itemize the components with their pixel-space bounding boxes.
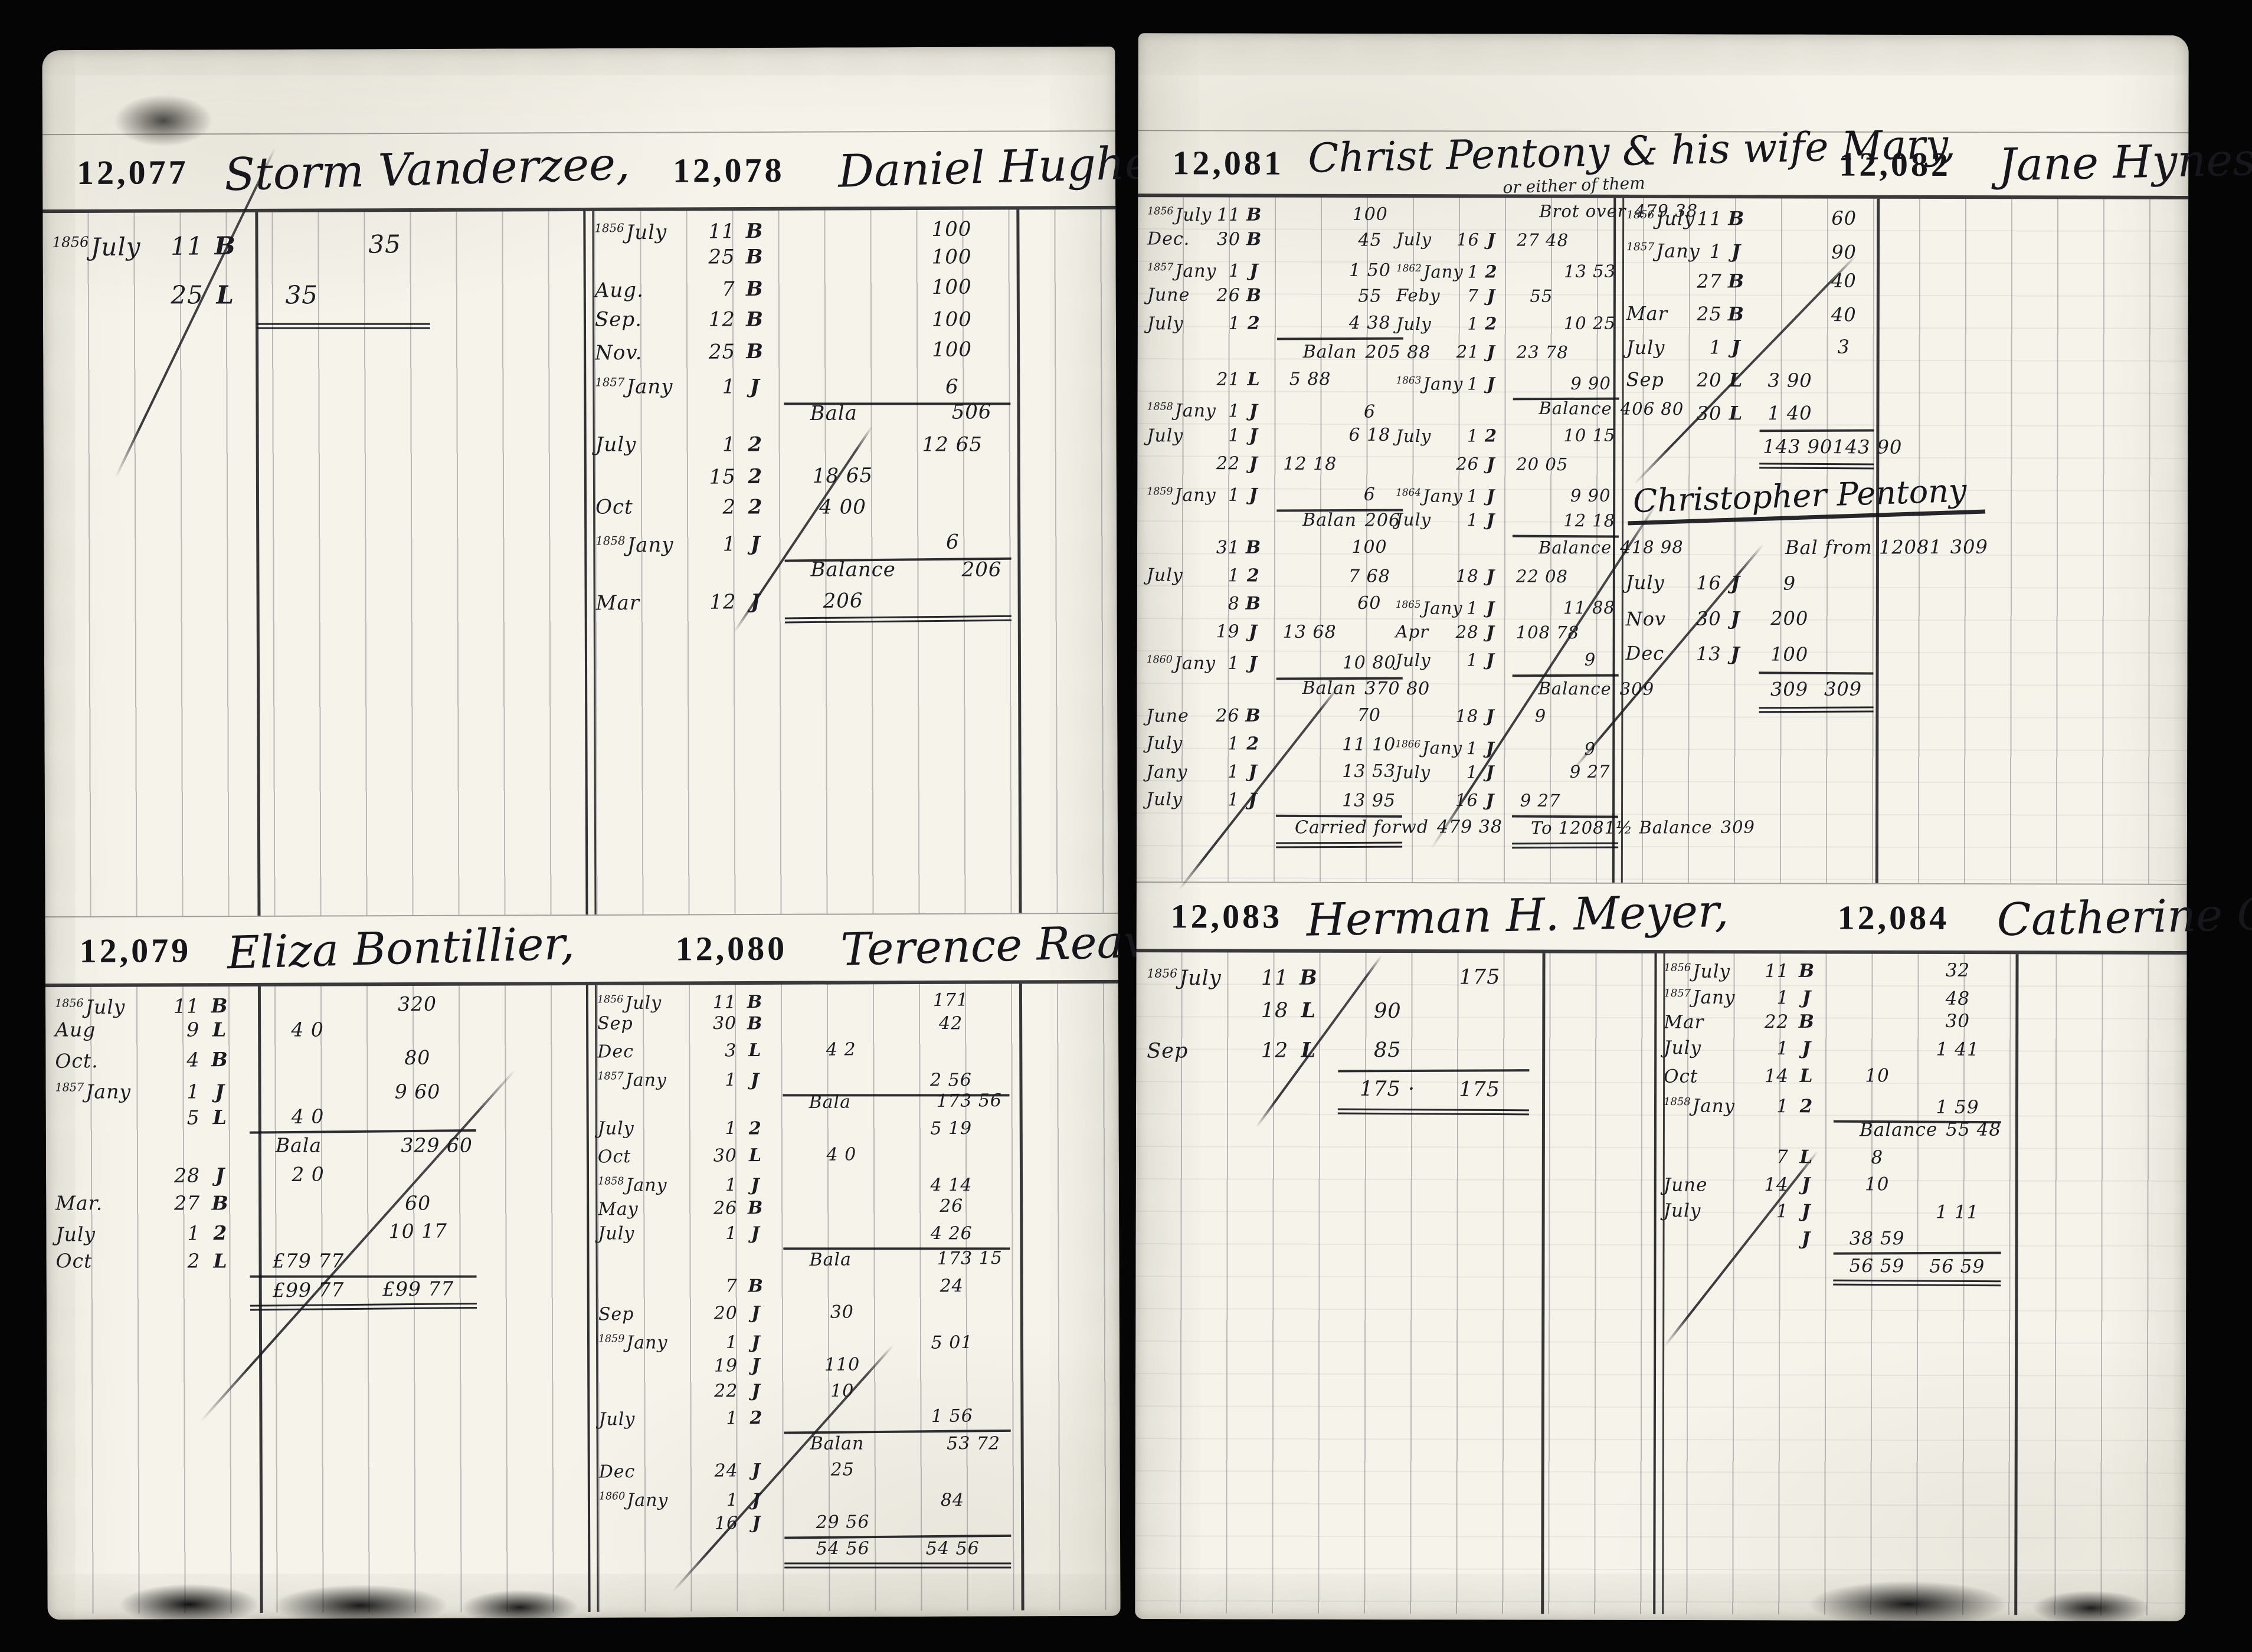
entry-day: 12	[702, 586, 737, 618]
entry-ref: B	[738, 1273, 774, 1300]
entry-date: Mar	[1658, 1008, 1757, 1036]
entry-amount-left	[1281, 301, 1340, 301]
account-number-12079: 12,079	[80, 930, 227, 971]
entry-day: 27	[1696, 264, 1722, 297]
entry-amounts: 35	[256, 217, 430, 274]
account-holder-name: Eliza Bontillier,	[227, 918, 676, 975]
entry-amounts: 10 25	[1513, 310, 1619, 338]
entry-ref: J	[1721, 601, 1750, 637]
entry-date: July	[1621, 331, 1696, 365]
account-header-band: 12,079 Eliza Bontillier, 12,080 Terence …	[45, 913, 1118, 987]
entry-date	[1657, 1271, 1756, 1271]
account-holder-name: Jane Hynes.	[1998, 137, 2252, 188]
ledger-entry-row: 1862Jany1213 53	[1390, 254, 1613, 283]
entry-ref: 2	[1240, 562, 1267, 590]
entry-amount-left: £79 77	[254, 1247, 364, 1276]
entry-ref: L	[199, 1103, 240, 1132]
entry-amount-right	[1917, 1190, 1998, 1191]
ledger-entry-row: June26B55	[1141, 281, 1389, 310]
entry-ref: B	[737, 1011, 773, 1037]
entry-ref: L	[204, 268, 247, 323]
entry-ref: B	[1722, 264, 1750, 297]
ledger-entry-row: To 12081½ Balance309	[1389, 814, 1612, 843]
entry-day	[702, 421, 736, 421]
entry-amounts: 60	[250, 1189, 476, 1218]
entry-amounts: 9	[1512, 702, 1618, 730]
entry-day: 1	[703, 1067, 737, 1094]
ledger-entry-row: July1J3	[1621, 330, 1874, 364]
ledger-entry-row: Carried forwd479 38	[1140, 814, 1388, 843]
entry-amount-left: 9 27	[1515, 786, 1565, 815]
entry-date	[1390, 581, 1456, 582]
ledger-entry-row: 28J2 0	[50, 1157, 584, 1191]
entry-label: Balan	[810, 1431, 865, 1457]
account-number-12081: 12,081	[1172, 143, 1308, 182]
entry-amount-left: 18 65	[788, 460, 898, 493]
account-panel-12079: 1856July11B320Aug9L4 0Oct.4B801857Jany1J…	[49, 985, 585, 1614]
entry-amount-left: 1 40	[1763, 396, 1816, 430]
entry-date: July	[1658, 1197, 1757, 1225]
account-panel-12081-col2: Brot over479 38July16J27 481862Jany1213 …	[1389, 198, 1613, 883]
entry-label: Balan	[1302, 674, 1356, 702]
entry-date: July	[1141, 422, 1215, 450]
entry-ref: J	[1721, 565, 1750, 601]
entry-day: 1	[1696, 234, 1722, 267]
entry-amounts: 100	[1759, 637, 1873, 675]
entry-amount-left: 175 ·	[1341, 1070, 1433, 1109]
entry-day: 14	[1757, 1063, 1789, 1090]
entry-day: 1	[1456, 506, 1478, 534]
entry-amount-left	[253, 1011, 362, 1012]
entry-date	[1620, 696, 1695, 697]
entry-day: 7	[1456, 282, 1479, 310]
entry-amount-right: 40	[1817, 264, 1871, 297]
ledger-entry-row: Balan370 80	[1140, 673, 1388, 703]
ledger-entries: 1856July11B321857Jany1J48Mar22B30July1J1…	[1657, 953, 2012, 1280]
entry-date: Mar.	[50, 1189, 165, 1218]
entry-amount-right: 175	[1433, 1070, 1526, 1109]
entry-amount-left: 27 48	[1517, 226, 1569, 254]
entry-day: 30	[1695, 396, 1721, 430]
entry-label: Balan	[1303, 337, 1357, 366]
entry-date	[1141, 553, 1215, 554]
entry-ref: J	[1478, 450, 1503, 478]
entry-amounts: 1 41	[1834, 1035, 2001, 1064]
entry-day: 7	[1757, 1143, 1789, 1171]
entry-ref: 2	[200, 1218, 240, 1248]
ledger-entry-row: 143 90143 90	[1620, 429, 1874, 463]
ledger-entry-row: 1864Jany1J9 90	[1390, 478, 1613, 507]
entry-day: 1	[1757, 984, 1789, 1011]
entry-ref: J	[738, 1353, 774, 1379]
entry-amounts: 11 10	[1276, 730, 1402, 759]
entry-ref: J	[1240, 618, 1267, 646]
entry-amounts: 9	[1759, 566, 1874, 602]
entry-date	[1141, 385, 1216, 386]
entry-date: Nov.	[589, 337, 702, 369]
entry-amount-right	[1917, 1244, 1998, 1245]
entry-date: 1859Jany	[593, 1326, 705, 1356]
entry-amount-left	[1279, 805, 1339, 806]
entry-amount-left: 4 0	[253, 1102, 362, 1132]
entry-amount-left: 4 0	[253, 1015, 362, 1044]
entry-amount-left: 3 90	[1763, 363, 1816, 397]
entry-ref: L	[1240, 366, 1267, 394]
ledger-entry-row: 8B60	[1141, 589, 1389, 618]
ledger-entry-row: 1857Jany1J90	[1621, 231, 1874, 265]
ledger-entry-row: 31B100	[1141, 533, 1389, 562]
entry-day: 4	[164, 1045, 199, 1074]
entry-day: 26	[1456, 450, 1478, 478]
entry-label: Bal from 12081	[1785, 529, 1942, 565]
ledger-grid-section: 1856July11B100Dec.30B451857Jany1J1 50Jun…	[1137, 197, 2188, 884]
ledger-grid-section: 1856July11B3525L35 1856July11B10025B100A…	[42, 209, 1118, 916]
entry-label: Brot over	[1539, 198, 1626, 226]
entry-amount-right: 320	[362, 989, 472, 1019]
entry-day: 1	[1215, 758, 1239, 786]
ledger-entry-row: July1J9 27	[1389, 758, 1612, 787]
ledger-entry-row: 7L8	[1658, 1143, 2012, 1172]
entry-day: 9	[164, 1015, 199, 1044]
entry-day: 1	[165, 1218, 200, 1248]
entry-amounts: 4 00	[784, 491, 1011, 523]
entry-date: 1857Jany	[591, 1063, 703, 1094]
ledger-entry-row: 25B100	[589, 241, 1108, 273]
entry-amount-right	[1433, 1018, 1526, 1018]
ledger-entry-row: 21J23 78	[1390, 337, 1613, 367]
entry-amounts: 55	[1277, 281, 1403, 310]
ledger-entry-row: 1856July11B100	[588, 208, 1108, 244]
entry-amount-right: 60	[363, 1189, 473, 1218]
entry-amounts: 100	[784, 334, 1010, 368]
entry-date	[1141, 356, 1216, 357]
entry-amount-right: 100	[897, 271, 1007, 304]
ledger-entry-row: Oct.4B80	[49, 1041, 583, 1076]
entry-day: 11	[164, 218, 204, 274]
entry-date: 1858Jany	[1141, 393, 1215, 425]
entry-amount-right: 55 48	[1946, 1116, 2001, 1143]
entry-ref: J	[1721, 636, 1749, 671]
entry-day: 2	[702, 491, 736, 523]
entry-ref: L	[1789, 1063, 1824, 1090]
ledger-entry-row: Aug.7B100	[589, 270, 1108, 306]
entry-date: Apr	[1390, 618, 1456, 646]
entry-amounts: 13 53	[1276, 758, 1402, 786]
entry-amounts: 12 18	[1513, 506, 1619, 537]
entry-date	[1141, 609, 1215, 610]
ledger-entry-row: Dec13J100	[1619, 635, 1873, 672]
entry-day: 3	[703, 1038, 737, 1064]
ledger-entries: Bal from 12081309July16J9Nov30J200Dec13J…	[1619, 530, 1874, 707]
entry-amount-right	[896, 1159, 1006, 1160]
entry-day: 13	[1695, 636, 1721, 671]
entry-date: 1856July	[46, 214, 165, 276]
entry-ref	[736, 421, 775, 421]
entry-amount-left: 54 56	[788, 1536, 898, 1562]
entry-amounts: 85	[1338, 1030, 1529, 1072]
entry-amounts: Bala173 56	[783, 1088, 1009, 1116]
ledger-page-left: 12,077 Storm Vanderzee, 12,078 Daniel Hu…	[42, 47, 1120, 1620]
entry-day: 25	[701, 241, 735, 273]
entry-amount-left: 25	[788, 1457, 898, 1484]
entry-amount-right: 24	[897, 1273, 1007, 1300]
entry-amount-right	[363, 1122, 473, 1123]
entry-ref: J	[1478, 562, 1503, 591]
entry-date	[1620, 452, 1695, 453]
entry-date: Oct	[590, 491, 702, 523]
entry-date	[1140, 693, 1215, 693]
ledger-entry-row: July1J1 11	[1658, 1197, 2012, 1226]
entry-day: 16	[1455, 786, 1478, 814]
entry-day: 1	[1215, 422, 1240, 450]
entry-ref: B	[735, 336, 775, 368]
entry-ref: J	[1240, 650, 1267, 678]
entry-ref: B	[1239, 702, 1266, 730]
entry-ref: J	[1240, 481, 1267, 510]
ledger-entry-row: July121 56	[593, 1402, 1112, 1433]
entry-amount-left: 12 18	[1280, 450, 1340, 478]
entry-day: 27	[165, 1189, 200, 1218]
entry-amounts: 3 90	[1759, 363, 1874, 397]
entry-label: Bala	[809, 1247, 852, 1273]
ledger-entry-row: Balance206	[590, 554, 1109, 585]
entry-day: 19	[1215, 618, 1240, 646]
entry-amount-right: 173 56	[932, 1088, 1006, 1115]
ledger-entry-row: Balance55 48	[1658, 1116, 2012, 1144]
entry-amounts: 1 50	[1277, 257, 1403, 285]
entry-amount-right: 143 90	[1832, 430, 1902, 464]
entry-amount-left	[860, 1264, 933, 1265]
entry-date	[590, 421, 702, 422]
entry-amount-right	[363, 1179, 473, 1181]
entry-amounts: 25	[784, 1456, 1011, 1484]
entry-amount-right: 40	[1817, 298, 1871, 332]
entry-ref: J	[738, 1330, 774, 1356]
entry-day: 1	[1757, 1035, 1789, 1062]
entry-day: 15	[702, 461, 737, 493]
entry-day: 7	[705, 1273, 738, 1300]
entry-date	[1658, 1136, 1757, 1137]
ledger-entry-row: Mar22B30	[1658, 1007, 2012, 1035]
account-panel-12084: 1856July11B321857Jany1J48Mar22B30July1J1…	[1657, 953, 2012, 1615]
entry-day: 24	[705, 1458, 738, 1484]
entry-date	[1620, 555, 1695, 555]
ledger-entry-row: Bal from 12081309	[1620, 530, 1874, 566]
entry-ref: J	[1479, 282, 1504, 310]
entry-amount-right	[897, 1316, 1007, 1317]
entry-amounts: 108 78	[1513, 618, 1619, 647]
entry-amount-left	[788, 1422, 898, 1424]
entry-amount-left: 110	[787, 1352, 897, 1379]
entry-ref: 2	[1479, 310, 1504, 338]
entry-day: 31	[1215, 534, 1240, 562]
entry-amounts: Balance55 48	[1834, 1116, 2001, 1143]
ledger-entry-row: Balance418 98	[1390, 534, 1613, 563]
ledger-entry-row: July1J12 18	[1390, 506, 1613, 535]
entry-amount-right: 53 72	[940, 1431, 1007, 1457]
entry-amount-right: 30	[1917, 1008, 1998, 1035]
entry-date	[1141, 468, 1215, 469]
entry-date: Dec	[591, 1038, 703, 1066]
entry-date	[50, 1298, 165, 1299]
entry-date: July	[1390, 310, 1456, 339]
entry-day: 19	[705, 1353, 738, 1379]
ledger-entry-row: Balan206	[1141, 505, 1389, 535]
account-holder-name-group: Christ Pentony & his wife Mary, or eithe…	[1308, 135, 1839, 192]
entry-ref: J	[1789, 1171, 1824, 1198]
ledger-entry-row: July16J27 48	[1390, 225, 1613, 255]
entry-amounts: 13 95	[1276, 786, 1402, 817]
entry-date: Oct	[50, 1247, 165, 1276]
ledger-entry-row: Balan205 88	[1141, 337, 1389, 366]
entry-amounts: 9 27	[1512, 786, 1618, 818]
entry-date	[50, 1182, 165, 1184]
account-number-12083: 12,083	[1171, 896, 1307, 936]
entry-day: 1	[1757, 1093, 1789, 1120]
entry-ref: J	[736, 586, 775, 618]
account-holder-name: Daniel Hughes,	[837, 139, 1189, 194]
entry-day: 30	[703, 1011, 737, 1037]
account-panel-12081-col1: 1856July11B100Dec.30B451857Jany1J1 50Jun…	[1140, 197, 1389, 882]
entry-date: 1857Jany	[589, 366, 701, 402]
entry-amount-right: 100	[897, 334, 1007, 366]
entry-amounts: 4 0	[249, 1015, 476, 1044]
ledger-entry-row: Mar12J206	[590, 583, 1109, 619]
ledger-entry-row: 1856July11B60	[1621, 198, 1874, 232]
entry-ref: 2	[1240, 310, 1268, 338]
entry-ref: L	[1721, 396, 1750, 430]
entry-day: 12	[1253, 1031, 1288, 1070]
entry-date: July	[1620, 565, 1695, 601]
entry-day: 26	[1215, 702, 1239, 730]
entry-day: 1	[1456, 422, 1478, 451]
entry-ref: J	[738, 1510, 775, 1537]
entry-amount-right: 80	[362, 1043, 472, 1073]
entry-amount-right: 1 11	[1917, 1198, 1998, 1226]
entry-amounts: 1 11	[1834, 1198, 2001, 1227]
entry-amount-right: 10 17	[363, 1216, 473, 1246]
entry-day: 18	[1456, 562, 1478, 590]
entry-day	[704, 1109, 737, 1109]
entry-date: July	[1389, 759, 1455, 787]
entry-date: Nov	[1620, 601, 1695, 637]
entry-day: 1	[1215, 562, 1240, 590]
entry-day: 12	[701, 304, 735, 335]
entry-date: July	[1140, 729, 1215, 758]
entry-amount-right	[898, 606, 1008, 607]
ledger-entry-row: 309309	[1619, 671, 1873, 708]
ledger-entry-row: July1J13 95	[1140, 785, 1388, 815]
entry-amount-left: 4 00	[788, 491, 898, 523]
entry-date: Sep.	[589, 304, 701, 335]
ledger-entry-row: July1210 25	[1390, 310, 1613, 339]
entry-amounts: 10	[784, 1378, 1010, 1405]
entry-ref: B	[200, 1189, 240, 1218]
entry-ref: J	[737, 1067, 773, 1094]
entry-ref: J	[1479, 226, 1504, 254]
entry-day: 1	[704, 1116, 737, 1142]
entry-ref: B	[1240, 534, 1267, 562]
entry-day: 20	[705, 1300, 738, 1327]
entry-amounts: 13 68	[1276, 618, 1403, 647]
entry-amount-left: 29 56	[788, 1509, 898, 1536]
entry-amount-left	[1837, 1055, 1917, 1056]
entry-day: 7	[701, 274, 736, 306]
account-panel-12077: 1856July11B3525L35	[46, 211, 582, 916]
ledger-entry-row: 1856July11B320	[49, 984, 583, 1018]
entry-amounts: Bal from 12081309	[1759, 530, 1874, 566]
entry-ref: B	[1789, 1008, 1824, 1035]
ledger-entry-row: Oct30L4 0	[592, 1139, 1111, 1171]
entry-amounts: 100	[784, 241, 1010, 273]
entry-amount-left: 13 68	[1280, 618, 1340, 646]
entry-amount-left: 5 88	[1280, 365, 1340, 394]
entry-amounts: 12 65	[784, 429, 1011, 460]
entry-amount-left: 309	[1762, 671, 1816, 707]
entry-amount-left	[1837, 1004, 1917, 1005]
account-header-band: 12,077 Storm Vanderzee, 12,078 Daniel Hu…	[42, 130, 1115, 213]
entry-amount-left	[253, 1238, 363, 1240]
entry-ref: B	[735, 304, 774, 335]
entry-amounts: 54 5654 56	[784, 1536, 1011, 1568]
ledger-entry-row: Nov.25B100	[589, 333, 1108, 369]
entry-day: 1	[1216, 310, 1240, 338]
entry-amounts: 70	[1276, 702, 1402, 730]
ledger-entry-row: July124 38	[1141, 309, 1389, 338]
entry-amounts: 42	[783, 1011, 1009, 1037]
entry-amount-left: 9	[1515, 702, 1565, 730]
entry-amount-left: 38 59	[1837, 1225, 1917, 1253]
entry-label: Bala	[276, 1131, 322, 1160]
entry-amounts: 9 90	[1513, 481, 1619, 510]
entry-day	[165, 1297, 201, 1298]
ledger-entry-row: 1856July11B100	[1141, 197, 1389, 226]
ledger-grid-section: 1856July11B320Aug9L4 0Oct.4B801857Jany1J…	[45, 984, 1121, 1614]
entry-amounts: 5 88	[1276, 365, 1403, 394]
entry-ref: J	[1240, 422, 1267, 450]
ledger-entry-row: 1856July11B171	[591, 982, 1111, 1013]
entry-date	[1658, 1162, 1757, 1163]
entry-date: 1858Jany	[1658, 1089, 1757, 1120]
entry-date: 1857Jany	[50, 1073, 165, 1106]
entry-date: July	[590, 429, 702, 460]
entry-amount-left	[786, 1007, 896, 1008]
entry-day: 25	[701, 336, 736, 368]
entry-date: 1857Jany	[1658, 980, 1757, 1011]
entry-date	[1140, 834, 1215, 834]
entry-amounts: 30	[1834, 1007, 2001, 1035]
entry-amounts: 100	[784, 271, 1010, 305]
entry-day: 25	[1696, 297, 1722, 330]
ledger-entry-row: July1211 10	[1140, 729, 1388, 759]
entry-amount-right: 329 60	[401, 1131, 472, 1160]
ledger-entry-row: July127 68	[1141, 561, 1389, 591]
entry-date: Aug.	[589, 274, 701, 307]
entry-amount-right: 35	[343, 217, 427, 273]
ledger-entry-row: 1863Jany1J9 90	[1390, 366, 1613, 395]
entry-day: 8	[1215, 590, 1240, 618]
entry-date	[1390, 469, 1456, 470]
ledger-entry-row: Balance406 80	[1390, 394, 1613, 423]
ledger-entry-row: 22J10	[593, 1378, 1112, 1404]
entry-amounts: 8	[1834, 1144, 2001, 1172]
entry-amounts: Balan205 88	[1277, 337, 1403, 366]
entry-amounts: 60	[1760, 201, 1874, 235]
entry-amounts: 10	[1834, 1170, 2001, 1198]
entry-amount-left	[1280, 581, 1340, 582]
ledger-entry-row: Jany1J13 53	[1140, 758, 1388, 786]
entry-day: 1	[1757, 1198, 1789, 1225]
